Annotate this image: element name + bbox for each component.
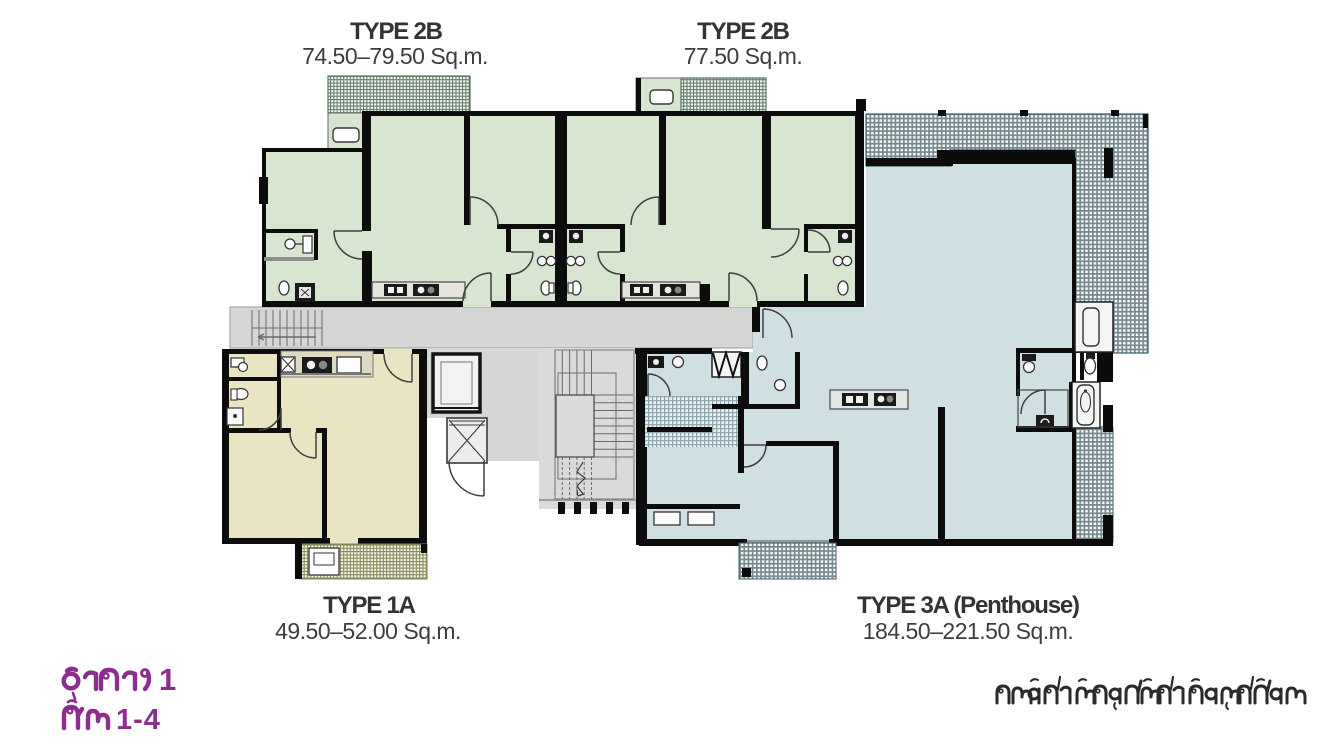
svg-text:TYPE 1A: TYPE 1A [323,592,415,619]
svg-text:TYPE 2B: TYPE 2B [697,18,789,45]
svg-text:74.50–79.50 Sq.m.: 74.50–79.50 Sq.m. [302,43,488,69]
svg-text:49.50–52.00 Sq.m.: 49.50–52.00 Sq.m. [275,618,461,644]
svg-text:184.50–221.50 Sq.m.: 184.50–221.50 Sq.m. [863,618,1073,644]
svg-text:TYPE 3A (Penthouse): TYPE 3A (Penthouse) [857,592,1079,619]
svg-text:TYPE 2B: TYPE 2B [350,18,442,45]
svg-text:1: 1 [159,662,176,697]
svg-text:77.50 Sq.m.: 77.50 Sq.m. [684,43,803,69]
svg-text:1-4: 1-4 [116,704,161,736]
